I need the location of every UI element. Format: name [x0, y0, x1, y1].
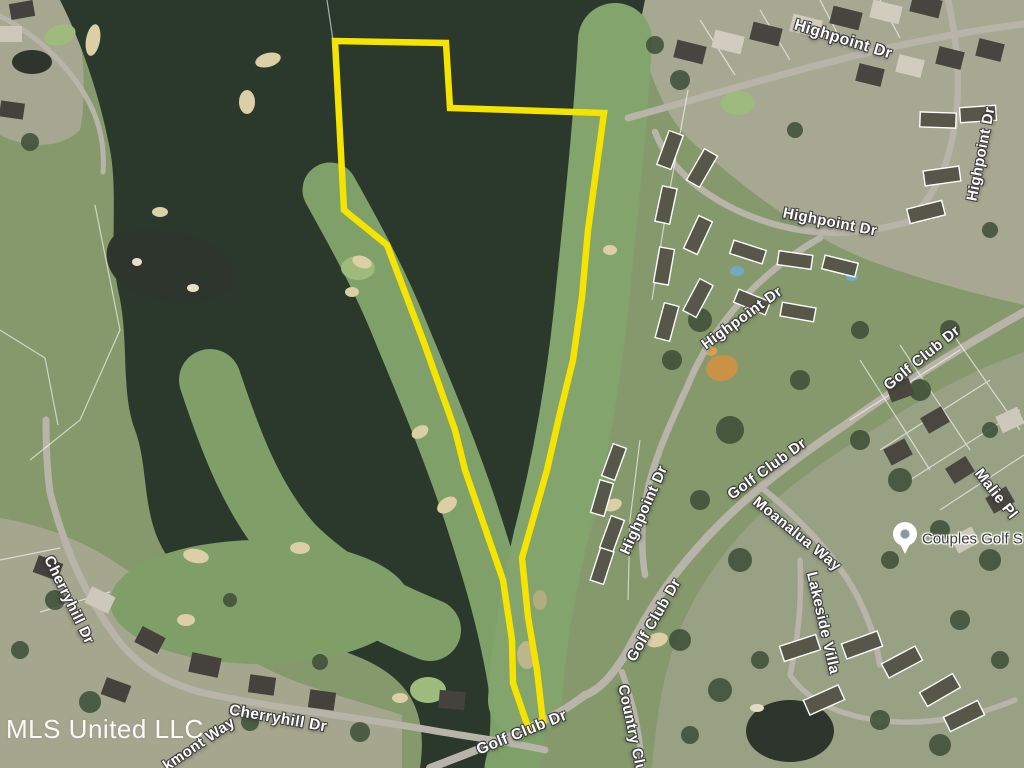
poi-label-couples-golf: Couples Golf S: [922, 531, 1023, 548]
satellite-map-image[interactable]: Highpoint Dr Highpoint Dr Highpoint Dr H…: [0, 0, 1024, 768]
mls-watermark: MLS United LLC: [6, 714, 204, 745]
property-boundary-polygon: [335, 41, 604, 730]
property-boundary: [0, 0, 1024, 768]
location-pin-icon: [891, 521, 919, 555]
